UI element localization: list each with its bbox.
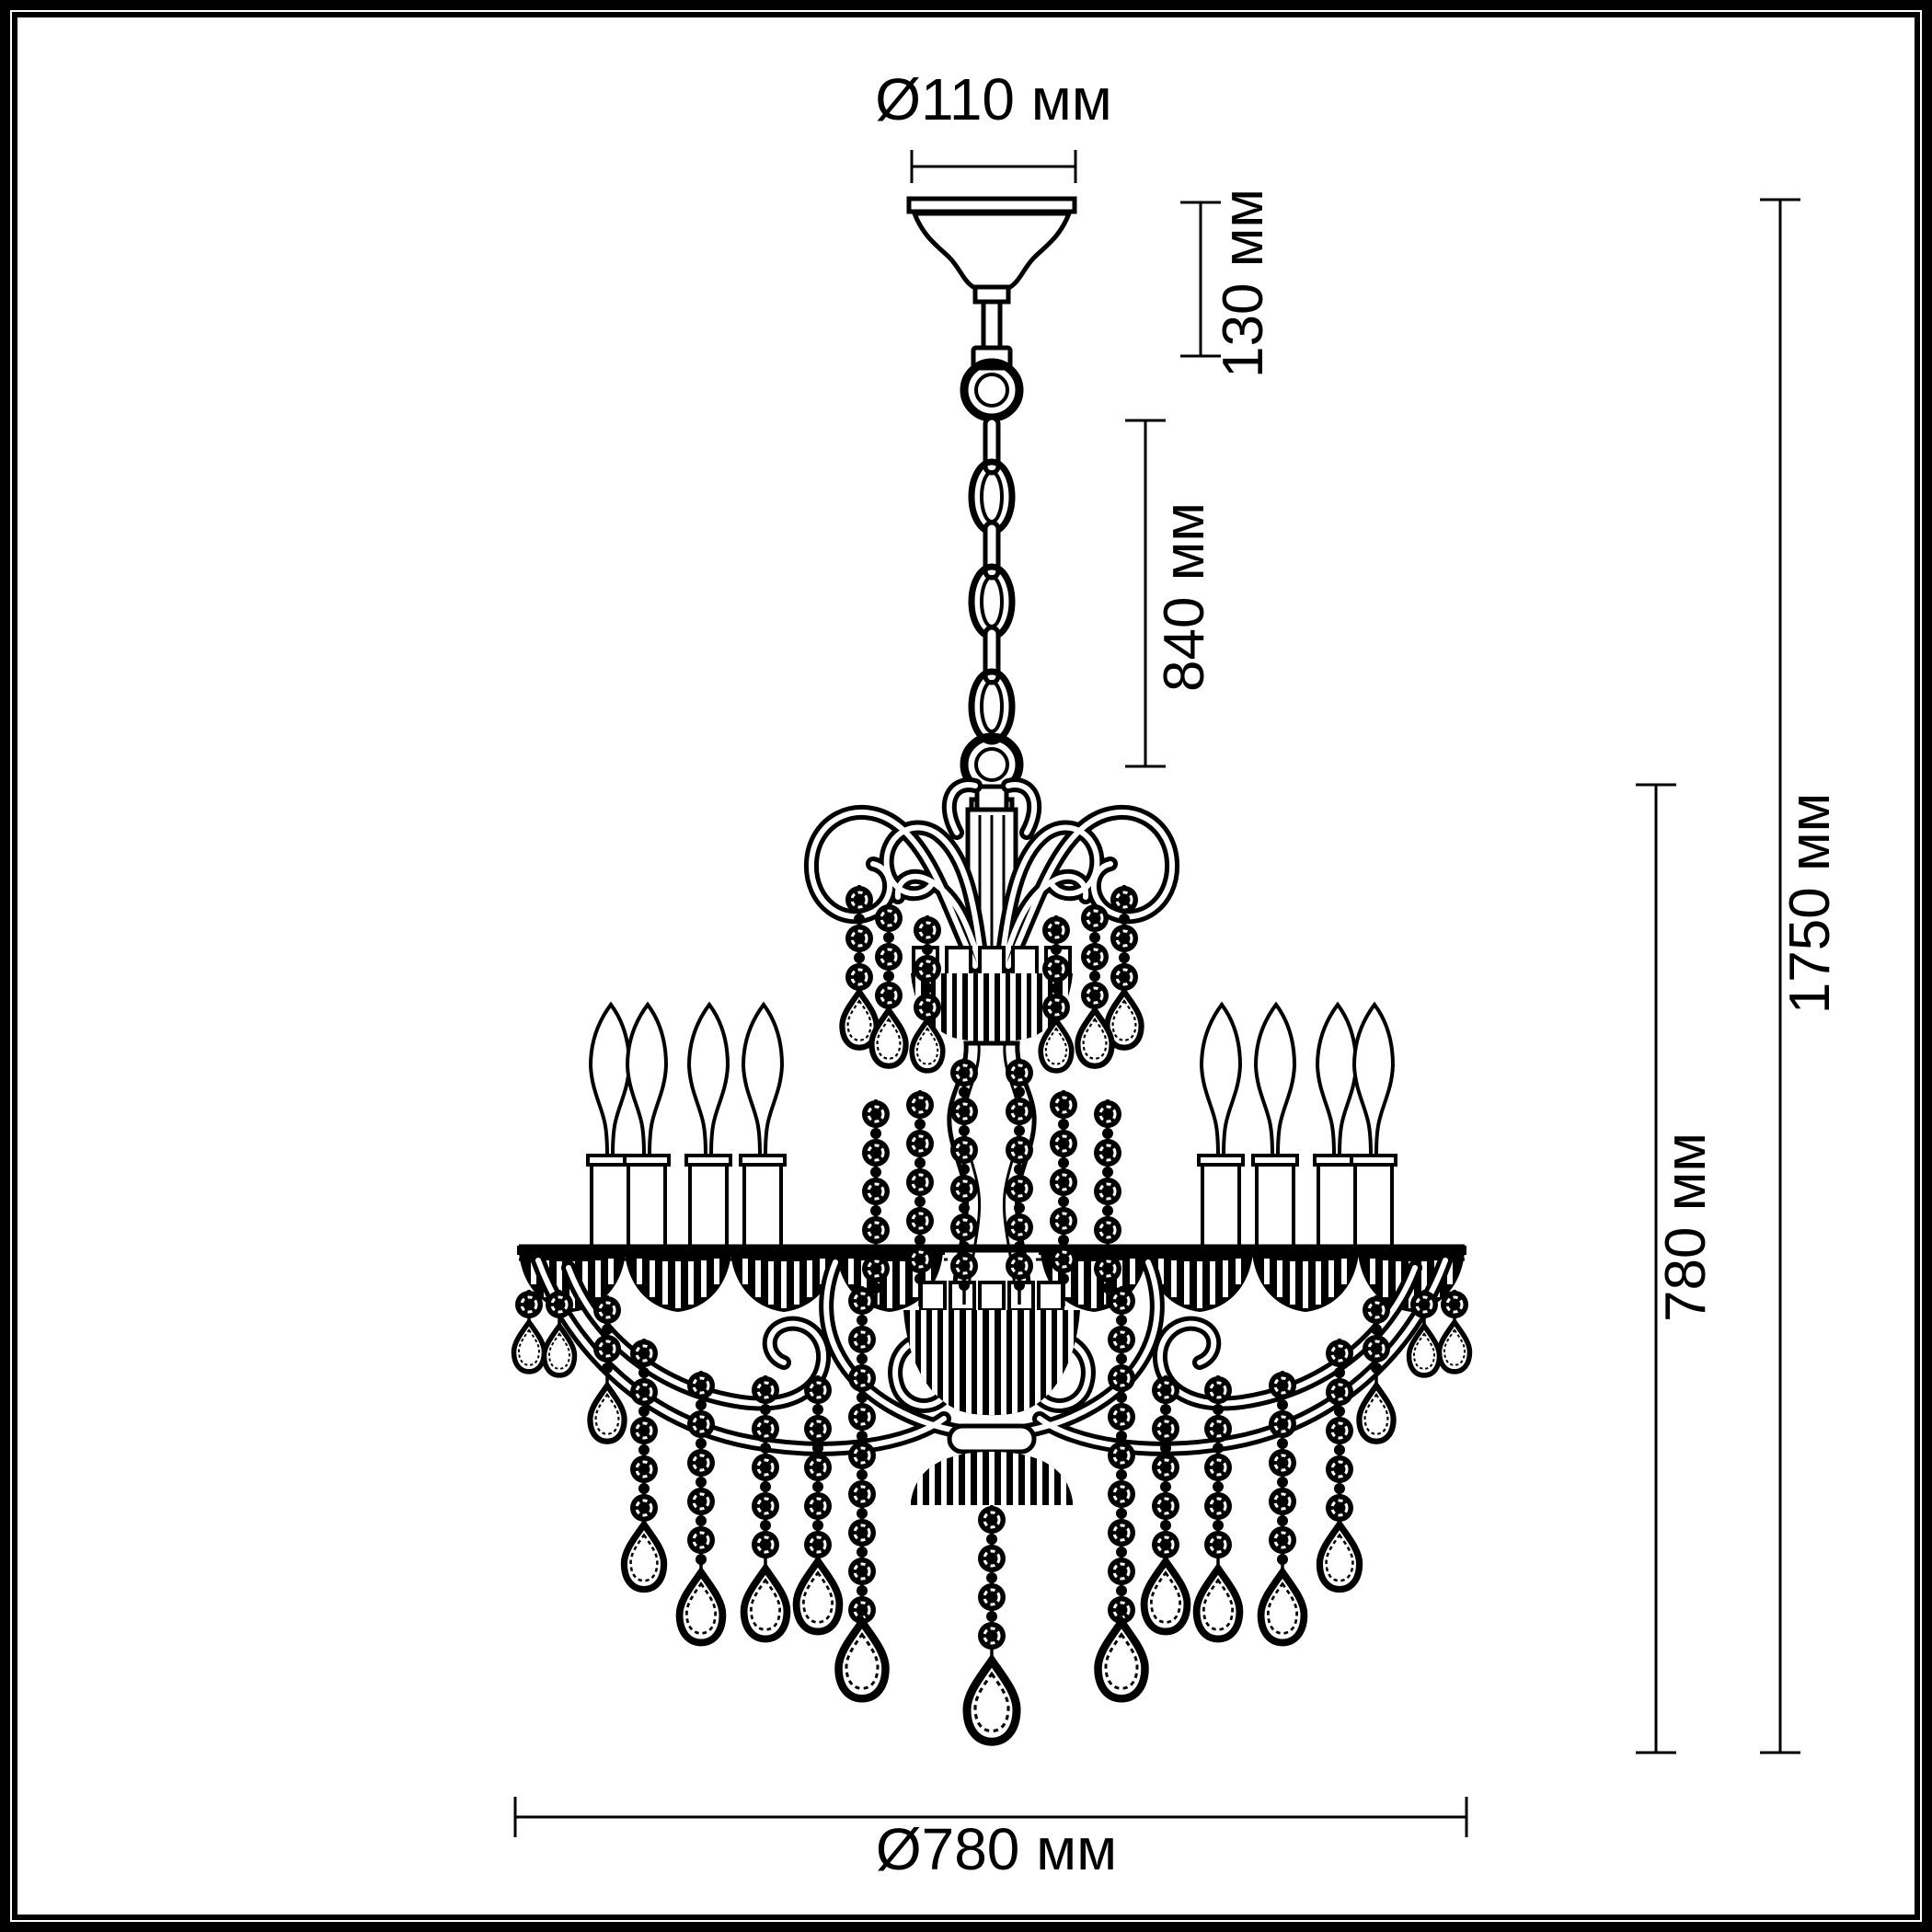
crystal-drop <box>1359 1386 1393 1442</box>
candle <box>1315 1005 1359 1249</box>
label-body-height: 780 мм <box>1658 1133 1715 1322</box>
crystal-drop <box>624 1524 663 1590</box>
bottom-dome <box>911 1452 1073 1505</box>
candle <box>1199 1005 1243 1249</box>
candle <box>588 1005 632 1249</box>
crystal-drop <box>1098 1622 1145 1698</box>
drawing-canvas: Ø110 мм 130 мм 840 мм 1750 мм 780 мм Ø78… <box>0 0 1932 1932</box>
crystal-drop <box>797 1561 840 1631</box>
crystal-drop <box>839 1622 886 1698</box>
crystal-drop <box>1319 1524 1359 1590</box>
crystal-drop <box>1261 1572 1305 1642</box>
crystal-drop <box>1144 1561 1188 1631</box>
crystal-drop <box>590 1386 624 1442</box>
label-canopy-diameter: Ø110 мм <box>875 70 1112 129</box>
chandelier-line-drawing <box>0 0 1932 1932</box>
crystal-drop <box>680 1572 723 1642</box>
lower-bowl <box>903 1282 1080 1505</box>
crystal-drop <box>744 1569 788 1639</box>
crystal-drop <box>514 1322 545 1372</box>
candle <box>625 1005 669 1249</box>
candle <box>1351 1005 1396 1249</box>
candle <box>1253 1005 1297 1249</box>
crystal-drop <box>967 1661 1017 1742</box>
candle <box>741 1005 785 1249</box>
label-canopy-height: 130 мм <box>1215 189 1272 378</box>
label-total-height: 1750 мм <box>1782 793 1839 1014</box>
suspension-chain <box>964 362 1019 812</box>
candle <box>686 1005 730 1249</box>
dim-canopy-diameter <box>912 150 1075 183</box>
collar-ring <box>949 1426 1034 1452</box>
label-body-diameter: Ø780 мм <box>876 1820 1117 1879</box>
ceiling-canopy <box>909 199 1075 368</box>
crystal-drop <box>1197 1569 1240 1639</box>
crystal-drop <box>1440 1322 1470 1372</box>
label-chain-length: 840 мм <box>1156 502 1213 692</box>
